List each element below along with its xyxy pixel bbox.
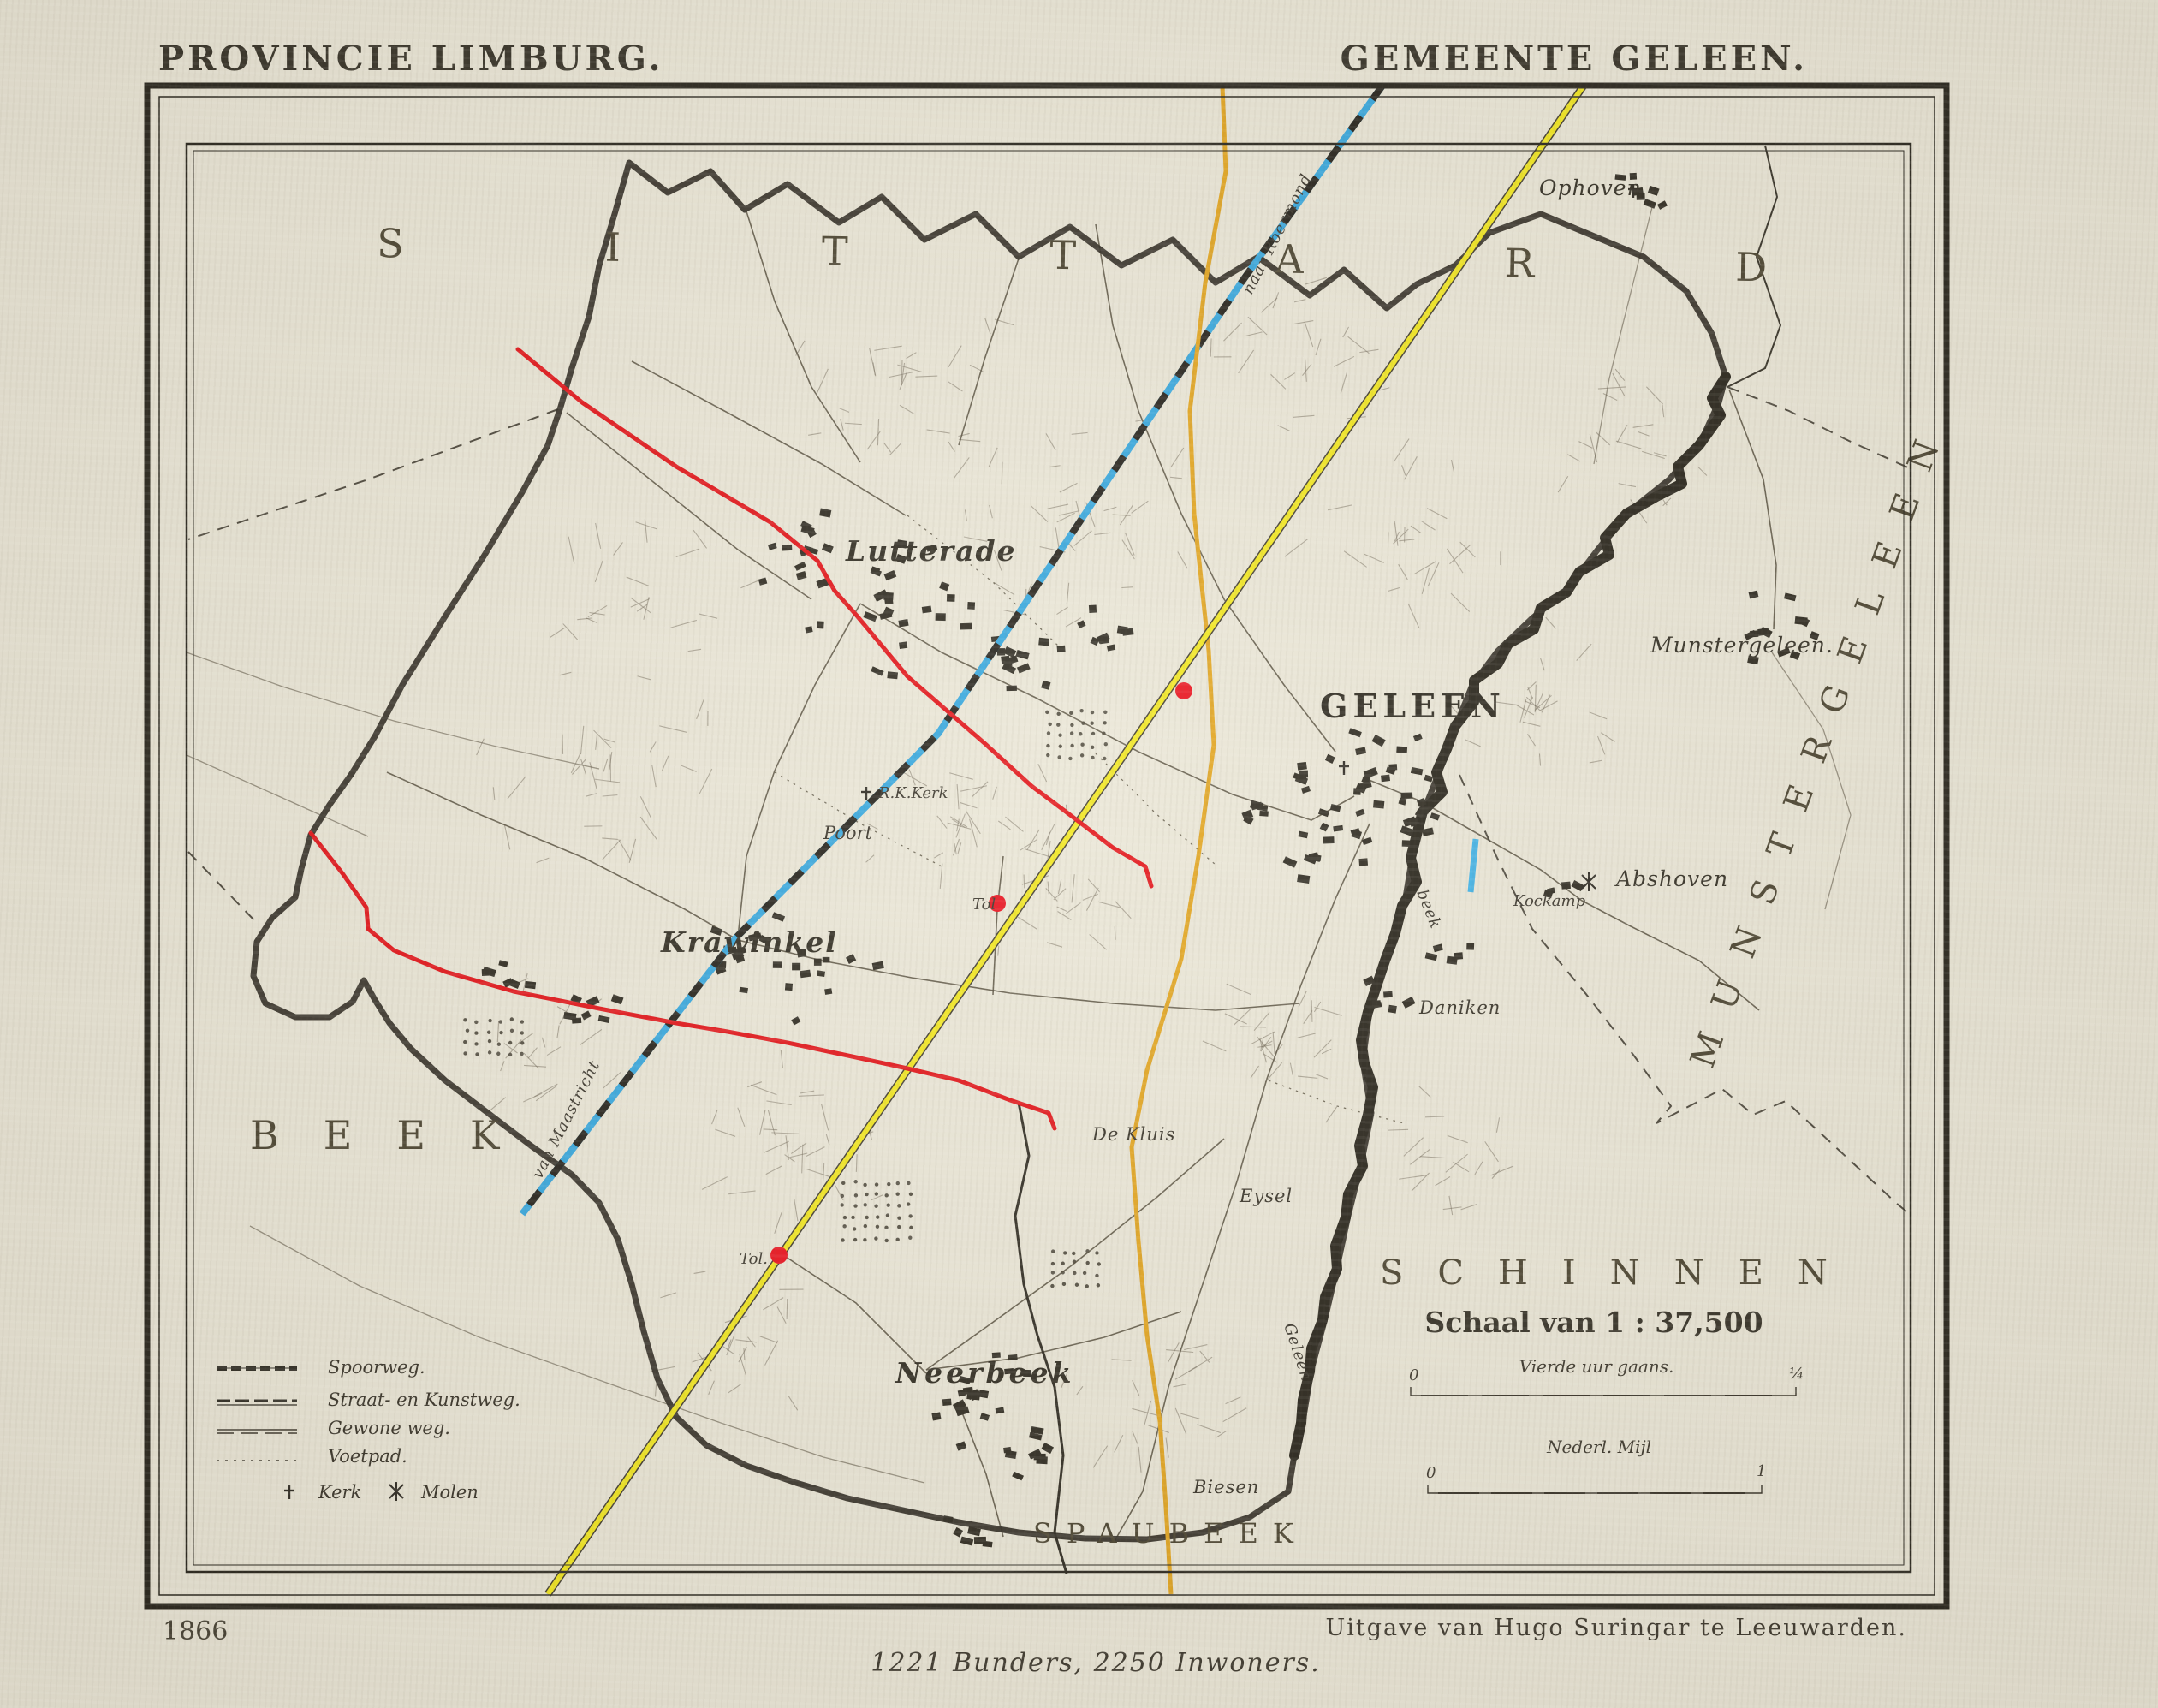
legend: Spoorweg. Straat- en Kunstweg. Gewone we… bbox=[217, 1357, 520, 1503]
church-mill-symbols bbox=[284, 184, 1638, 1501]
legend-label-spoorweg: Spoorweg. bbox=[328, 1357, 425, 1378]
scale-mijl-start: 0 bbox=[1426, 1464, 1436, 1482]
scale-block: Schaal van 1 : 37,500 Vierde uur gaans. … bbox=[1409, 1306, 1804, 1493]
scale-walk-label: Vierde uur gaans. bbox=[1519, 1356, 1674, 1377]
scale-mijl-label: Nederl. Mijl bbox=[1546, 1437, 1651, 1457]
region-spaubeek: SPAUBEEK bbox=[1033, 1517, 1308, 1550]
village-neerbeek: Neerbeek bbox=[895, 1356, 1074, 1390]
hamlet-daniken: Daniken bbox=[1418, 997, 1501, 1018]
village-lutterade: Lutterade bbox=[845, 534, 1017, 568]
scale-mijl-end: 1 bbox=[1757, 1462, 1766, 1480]
hamlet-de-kluis: De Kluis bbox=[1091, 1124, 1175, 1145]
village-munstergeleen: Munstergeleen. bbox=[1650, 633, 1834, 658]
province-title: PROVINCIE LIMBURG. bbox=[158, 39, 663, 79]
hamlet-abshoven: Abshoven bbox=[1614, 866, 1728, 891]
scale-walk-start: 0 bbox=[1409, 1366, 1418, 1384]
road-network bbox=[187, 207, 1851, 1541]
hamlet-eysel: Eysel bbox=[1239, 1186, 1293, 1206]
poi-tol-south: Tol. bbox=[740, 1250, 768, 1268]
year-label: 1866 bbox=[163, 1616, 228, 1646]
hamlet-biesen: Biesen bbox=[1192, 1477, 1259, 1497]
village-ophoven: Ophoven bbox=[1539, 176, 1642, 200]
building-clusters bbox=[482, 173, 1820, 1548]
map-canvas: SITTARDBEEKSCHINNENSPAUBEEKMUNSTERGELEEN… bbox=[187, 86, 1969, 1594]
poi-poort: Poort bbox=[823, 823, 873, 843]
stream-label-beek: beek bbox=[1412, 887, 1444, 931]
poi-rk-kerk: R.K.Kerk bbox=[877, 784, 948, 802]
legend-label-voetpad: Voetpad. bbox=[328, 1446, 407, 1467]
scale-title: Schaal van 1 : 37,500 bbox=[1424, 1306, 1763, 1339]
region-munstergeleen: MUNSTERGELEEN bbox=[1683, 410, 1956, 1073]
hamlet-krawinkel: Krawinkel bbox=[660, 925, 838, 959]
poi-tol-north: Tol bbox=[972, 896, 996, 914]
region-beek: BEEK bbox=[250, 1112, 544, 1158]
town-geleen: GELEEN bbox=[1320, 687, 1506, 725]
region-schinnen: SCHINNEN bbox=[1380, 1253, 1862, 1293]
scale-walk-end: ¼ bbox=[1789, 1365, 1804, 1383]
legend-label-molen: Molen bbox=[420, 1482, 479, 1503]
map-sheet: { "sheet": { "title_left": "PROVINCIE LI… bbox=[0, 0, 2158, 1708]
statistics-line: 1221 Bunders, 2250 Inwoners. bbox=[871, 1648, 1320, 1678]
legend-label-straatweg: Straat- en Kunstweg. bbox=[328, 1390, 520, 1410]
hamlet-kockamp: Kockamp bbox=[1513, 892, 1586, 910]
legend-label-gewone-weg: Gewone weg. bbox=[328, 1418, 450, 1438]
map-labels: SITTARDBEEKSCHINNENSPAUBEEKMUNSTERGELEEN… bbox=[250, 171, 1969, 1550]
gemeente-title: GEMEENTE GELEEN. bbox=[1341, 39, 1808, 79]
legend-label-kerk: Kerk bbox=[318, 1482, 361, 1503]
publisher-line: Uitgave van Hugo Suringar te Leeuwarden. bbox=[1325, 1615, 1907, 1641]
stream-orange-line bbox=[1132, 86, 1226, 1594]
region-sittard: SITTARD bbox=[377, 220, 1969, 294]
